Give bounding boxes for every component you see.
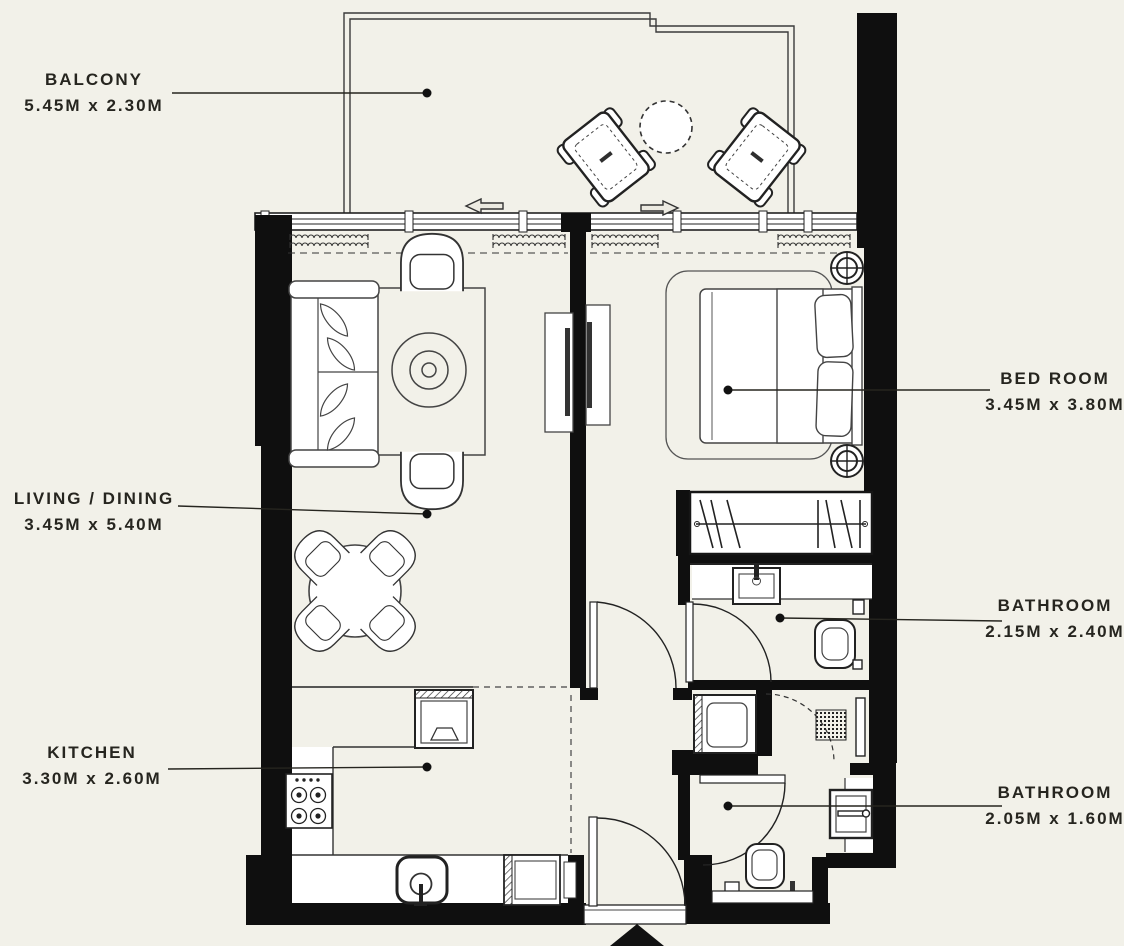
bathroom-2 bbox=[700, 775, 873, 903]
room-name: BED ROOM bbox=[980, 366, 1124, 392]
bedside-lamp-icon bbox=[831, 252, 863, 284]
room-name: LIVING / DINING bbox=[8, 486, 180, 512]
room-dims: 2.15M x 2.40M bbox=[980, 619, 1124, 645]
window-icon bbox=[255, 211, 857, 232]
bathroom-1 bbox=[686, 564, 872, 682]
balcony-railing bbox=[344, 13, 794, 215]
label-bathroom-1: BATHROOM 2.15M x 2.40M bbox=[980, 593, 1124, 645]
kitchen bbox=[286, 687, 571, 906]
balcony-chair-icon bbox=[706, 106, 808, 209]
bedside-lamp-icon bbox=[831, 445, 863, 477]
room-name: BATHROOM bbox=[980, 593, 1124, 619]
label-living-dining: LIVING / DINING 3.45M x 5.40M bbox=[8, 486, 180, 538]
closet bbox=[766, 694, 865, 762]
floor-plan-canvas: BALCONY 5.45M x 2.30M LIVING / DINING 3.… bbox=[0, 0, 1124, 946]
washing-machine-icon bbox=[694, 695, 756, 753]
balcony-table-icon bbox=[640, 101, 692, 153]
fridge-icon bbox=[415, 690, 473, 748]
room-name: BATHROOM bbox=[980, 780, 1124, 806]
room-name: BALCONY bbox=[14, 67, 174, 93]
room-dims: 5.45M x 2.30M bbox=[14, 93, 174, 119]
double-bed-icon bbox=[700, 287, 862, 445]
room-dims: 3.45M x 5.40M bbox=[8, 512, 180, 538]
wardrobe-icon bbox=[690, 492, 872, 554]
label-kitchen: KITCHEN 3.30M x 2.60M bbox=[12, 740, 172, 792]
kitchen-sink-icon bbox=[397, 857, 447, 906]
armchair-icon bbox=[401, 452, 463, 510]
door-swing-icon bbox=[590, 602, 676, 688]
bath-sink-icon bbox=[733, 564, 780, 604]
sofa-icon bbox=[289, 281, 379, 467]
room-dims: 3.45M x 3.80M bbox=[980, 392, 1124, 418]
room-dims: 2.05M x 1.60M bbox=[980, 806, 1124, 832]
room-name: KITCHEN bbox=[12, 740, 172, 766]
room-dims: 3.30M x 2.60M bbox=[12, 766, 172, 792]
floor-plan-svg bbox=[0, 0, 1124, 946]
toilet-icon bbox=[815, 600, 864, 669]
stove-icon bbox=[286, 774, 332, 828]
door-swing-icon bbox=[686, 602, 771, 682]
coffee-table-icon bbox=[377, 288, 485, 455]
label-bedroom: BED ROOM 3.45M x 3.80M bbox=[980, 366, 1124, 418]
label-bathroom-2: BATHROOM 2.05M x 1.60M bbox=[980, 780, 1124, 832]
bath-sink-icon bbox=[830, 790, 872, 838]
dishwasher-icon bbox=[504, 855, 560, 905]
entry-arrow-icon bbox=[610, 924, 664, 946]
armchair-icon bbox=[401, 234, 463, 291]
label-balcony: BALCONY 5.45M x 2.30M bbox=[14, 67, 174, 119]
toilet-icon bbox=[746, 844, 784, 888]
